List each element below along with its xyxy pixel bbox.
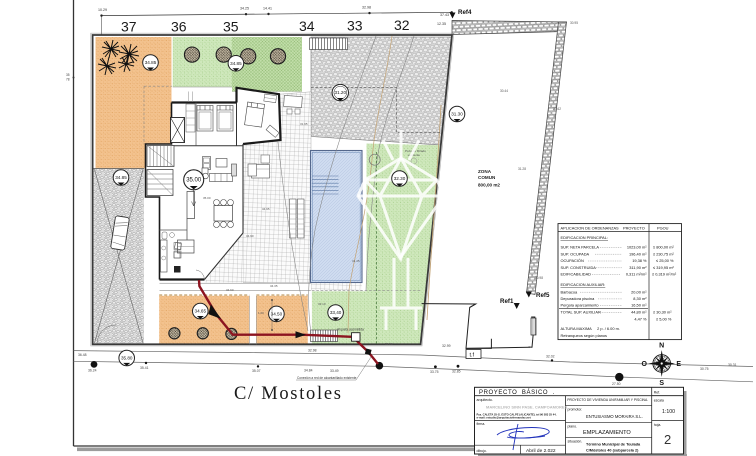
svg-text:34.90: 34.90 — [246, 234, 254, 238]
svg-text:10.29: 10.29 — [98, 8, 107, 12]
svg-text:35: 35 — [66, 73, 70, 77]
svg-text:PROYECTO: PROYECTO — [623, 225, 645, 230]
svg-text:34: 34 — [299, 18, 315, 34]
svg-text:≥ 800,00 m²: ≥ 800,00 m² — [653, 245, 674, 250]
svg-text:≤ 5,00 %: ≤ 5,00 % — [656, 316, 672, 321]
svg-text:32.20: 32.20 — [385, 342, 393, 346]
svg-text:33,40: 33,40 — [330, 310, 342, 315]
svg-text:30.98: 30.98 — [535, 276, 543, 280]
svg-text:30.31: 30.31 — [728, 363, 737, 367]
svg-text:30.95: 30.95 — [570, 21, 578, 25]
svg-text:32: 32 — [394, 17, 410, 33]
svg-text:TOTAL SUP. AUXILIAR: TOTAL SUP. AUXILIAR — [561, 309, 601, 314]
svg-text:C/Móstoles 40 (subparcela 2): C/Móstoles 40 (subparcela 2) — [586, 449, 639, 453]
svg-text:44,80 m²: 44,80 m² — [631, 309, 647, 314]
svg-text:E: E — [676, 361, 681, 368]
svg-text:Barbacoa: Barbacoa — [561, 289, 578, 294]
svg-text:EDIFICACION PRINCIPAL:: EDIFICACION PRINCIPAL: — [561, 235, 609, 240]
svg-text:arquitecto.: arquitecto. — [477, 398, 493, 402]
svg-text:firma.: firma. — [477, 422, 486, 426]
svg-text:37.43: 37.43 — [440, 13, 449, 17]
svg-text:Abril de 2.022: Abril de 2.022 — [526, 448, 556, 454]
svg-text:32.99: 32.99 — [442, 344, 451, 348]
svg-text:1.00: 1.00 — [258, 311, 264, 315]
svg-text:32.98: 32.98 — [308, 349, 317, 353]
svg-text:34.25: 34.25 — [240, 7, 249, 11]
svg-text:27.50: 27.50 — [612, 382, 621, 386]
svg-text:35.07: 35.07 — [252, 369, 261, 373]
svg-text:Término Municipal de Teulada: Término Municipal de Teulada — [586, 443, 641, 447]
svg-text:ENTUSIASMO MORAIRA S.L.: ENTUSIASMO MORAIRA S.L. — [586, 414, 643, 419]
svg-text:34.85: 34.85 — [115, 175, 127, 180]
svg-text:35: 35 — [223, 19, 239, 35]
svg-text:35.41: 35.41 — [140, 366, 149, 370]
svg-text:OCUPACIÓN: OCUPACIÓN — [561, 258, 584, 263]
svg-text:30.44: 30.44 — [500, 89, 508, 93]
svg-text:EDIFICABILIDAD: EDIFICABILIDAD — [561, 272, 592, 277]
svg-text:34.65: 34.65 — [195, 309, 207, 314]
svg-text:≤ 230,75 m²: ≤ 230,75 m² — [653, 251, 674, 256]
svg-text:Ref1: Ref1 — [500, 298, 514, 305]
svg-text:1:100: 1:100 — [662, 409, 675, 415]
svg-text:800,00 m2: 800,00 m2 — [478, 183, 500, 188]
svg-text:37: 37 — [121, 19, 137, 35]
svg-text:196,40 m²: 196,40 m² — [629, 251, 647, 256]
svg-text:12.35: 12.35 — [437, 22, 446, 26]
svg-text:8,30 m²: 8,30 m² — [633, 296, 647, 301]
svg-text:20,00 m²: 20,00 m² — [631, 289, 647, 294]
svg-text:EDIFICACION AUXILIAR:: EDIFICACION AUXILIAR: — [561, 282, 606, 287]
svg-text:30.62: 30.62 — [553, 107, 561, 111]
svg-text:31.30: 31.30 — [451, 112, 463, 117]
svg-text:34.95: 34.95 — [262, 207, 270, 211]
svg-text:34.60: 34.60 — [226, 288, 234, 292]
svg-text:SUP. NETA PARCELA: SUP. NETA PARCELA — [561, 245, 600, 250]
svg-text:N: N — [659, 343, 664, 350]
svg-text:19,38 %: 19,38 % — [632, 258, 647, 263]
svg-text:dibujo.: dibujo. — [477, 449, 487, 453]
svg-text:33.49: 33.49 — [330, 369, 339, 373]
svg-text:promotor.: promotor. — [568, 408, 583, 412]
svg-text:PGOU: PGOU — [657, 225, 669, 230]
svg-text:31.28: 31.28 — [518, 167, 526, 171]
svg-text:34.85: 34.85 — [230, 61, 242, 66]
svg-text:escala: escala — [654, 398, 664, 402]
svg-text:16,50 m²: 16,50 m² — [631, 303, 647, 308]
svg-text:SUP. CONSTRUIDA: SUP. CONSTRUIDA — [561, 265, 597, 270]
svg-text:35.80: 35.80 — [121, 356, 133, 361]
svg-text:32.02: 32.02 — [546, 355, 555, 359]
svg-text:30.75: 30.75 — [700, 367, 709, 371]
svg-text:SUP. OCUPADA: SUP. OCUPADA — [561, 251, 590, 256]
svg-text:C/ Mostoles: C/ Mostoles — [234, 384, 343, 404]
svg-text:4,47 %: 4,47 % — [634, 316, 647, 321]
svg-text:78: 78 — [66, 78, 70, 82]
svg-text:1023,00 m²: 1023,00 m² — [627, 245, 647, 250]
svg-text:35.00: 35.00 — [203, 196, 211, 200]
svg-text:≤ 319,95 m²: ≤ 319,95 m² — [653, 265, 674, 270]
svg-text:t.f: t.f — [470, 353, 475, 359]
svg-text:36.24: 36.24 — [88, 369, 97, 373]
svg-text:32.30: 32.30 — [394, 176, 406, 181]
svg-text:31.95: 31.95 — [300, 122, 308, 126]
svg-text:Ref4: Ref4 — [458, 9, 472, 16]
svg-text:Ref.: Ref. — [654, 390, 660, 394]
svg-text:≤ 30,30 m²: ≤ 30,30 m² — [653, 309, 672, 314]
svg-text:31.20: 31.20 — [335, 90, 347, 95]
svg-text:Depuradora piscina: Depuradora piscina — [561, 296, 596, 301]
svg-text:33: 33 — [347, 18, 363, 34]
svg-text:Retranqueos según planos: Retranqueos según planos — [561, 333, 608, 338]
svg-text:plano.: plano. — [568, 425, 578, 429]
svg-text:S: S — [659, 380, 664, 387]
svg-text:14.41: 14.41 — [263, 6, 272, 10]
svg-text:0,311 m²/m²: 0,311 m²/m² — [626, 272, 647, 277]
svg-text:34.85: 34.85 — [145, 60, 157, 65]
svg-text:≤ 25,00 %: ≤ 25,00 % — [656, 258, 674, 263]
svg-text:36: 36 — [171, 19, 187, 35]
svg-text:31.45: 31.45 — [352, 259, 360, 263]
svg-text:≤ 0,319 m²/m²: ≤ 0,319 m²/m² — [652, 272, 677, 277]
svg-text:EMPLAZAMIENTO: EMPLAZAMIENTO — [583, 430, 631, 436]
svg-text:Ref5: Ref5 — [536, 292, 550, 299]
svg-text:311,90 m²: 311,90 m² — [629, 265, 647, 270]
svg-text:hoja.: hoja. — [654, 423, 662, 427]
svg-text:34.84: 34.84 — [304, 369, 313, 373]
svg-text:PROYECTO DE VIVIENDA UNIFAMILI: PROYECTO DE VIVIENDA UNIFAMILIAR Y PISCI… — [567, 398, 648, 402]
svg-text:Conexión a red de alcantarilla: Conexión a red de alcantarillado existen… — [297, 376, 357, 380]
svg-text:33.75: 33.75 — [430, 370, 439, 374]
svg-text:APLICACION DE ORDENANZAS: APLICACION DE ORDENANZAS — [561, 225, 620, 230]
svg-text:35.00: 35.00 — [186, 178, 202, 184]
svg-text:34.50: 34.50 — [271, 312, 283, 317]
svg-text:32.98: 32.98 — [362, 6, 371, 10]
svg-text:Arqueta acometida: Arqueta acometida — [337, 328, 364, 332]
svg-text:36.48: 36.48 — [78, 353, 87, 357]
svg-text:33.10: 33.10 — [318, 302, 326, 306]
svg-text:34.35: 34.35 — [270, 284, 278, 288]
svg-text:COMUN: COMUN — [478, 175, 496, 180]
svg-text:O: O — [641, 361, 647, 368]
svg-text:e-mail: estudio@arquitectofern: e-mail: estudio@arquitectofernandez.net — [477, 416, 531, 420]
svg-text:2: 2 — [664, 432, 671, 447]
svg-text:Pergola aparcamiento: Pergola aparcamiento — [561, 303, 599, 308]
svg-text:32.85: 32.85 — [452, 370, 461, 374]
svg-text:PROYECTO BÁSICO .: PROYECTO BÁSICO . — [479, 389, 555, 396]
svg-text:ZONA: ZONA — [478, 169, 492, 174]
svg-text:MARCELINO SINN PASE. CAMPOAMOR: MARCELINO SINN PASE. CAMPOAMORES — [486, 404, 568, 409]
svg-text:ALTURA MAXIMA 2 p. / 6.00: ALTURA MAXIMA 2 p. / 6.00 m. — [561, 326, 620, 331]
svg-text:situación.: situación. — [568, 439, 583, 443]
